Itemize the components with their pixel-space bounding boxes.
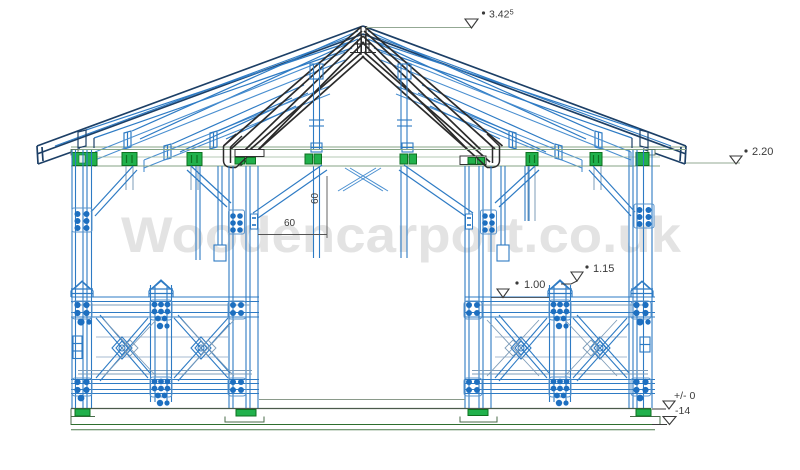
svg-text:60: 60 (310, 192, 321, 204)
svg-text:2.20: 2.20 (752, 146, 773, 158)
svg-text:60: 60 (284, 218, 296, 229)
svg-text:1.00: 1.00 (524, 279, 545, 291)
svg-text:1.15: 1.15 (593, 263, 614, 275)
svg-text:-14: -14 (675, 405, 690, 417)
svg-text:+/- 0: +/- 0 (674, 390, 695, 402)
